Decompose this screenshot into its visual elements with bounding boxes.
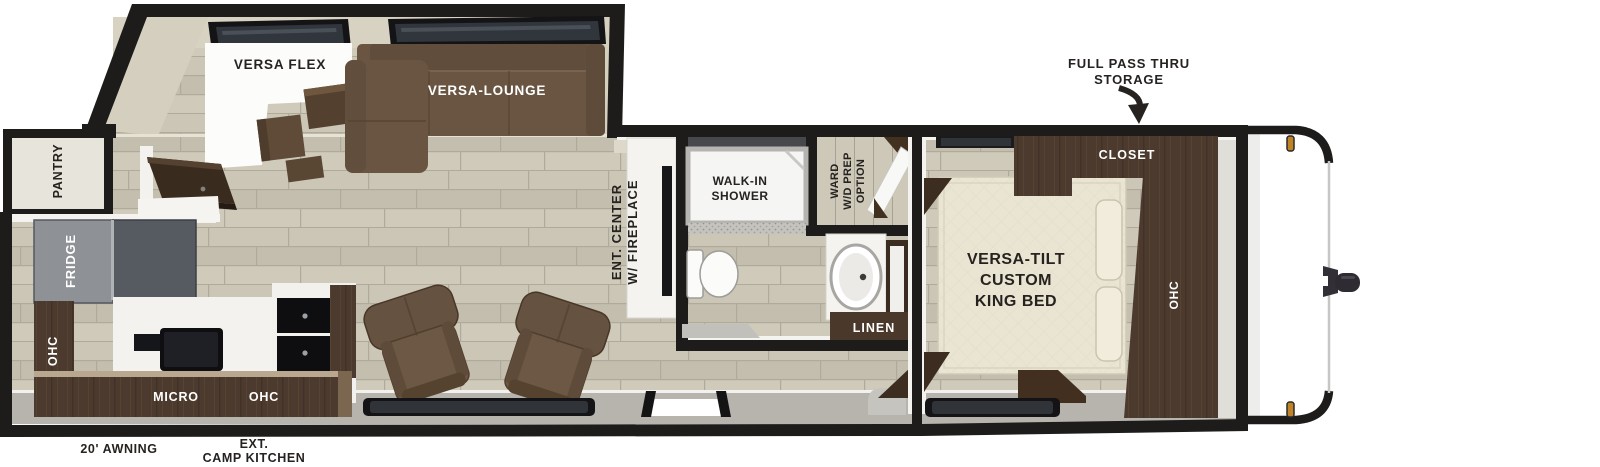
svg-text:WALK-IN: WALK-IN xyxy=(713,174,768,188)
svg-text:MICRO: MICRO xyxy=(153,390,199,404)
svg-text:EXT.: EXT. xyxy=(240,437,269,451)
svg-text:OHC: OHC xyxy=(46,336,60,366)
svg-text:SHOWER: SHOWER xyxy=(712,189,769,203)
svg-text:CLOSET: CLOSET xyxy=(1099,148,1156,162)
svg-text:LINEN: LINEN xyxy=(853,321,896,335)
svg-text:WARD: WARD xyxy=(829,163,841,198)
svg-text:VERSA-TILT: VERSA-TILT xyxy=(967,251,1065,268)
svg-text:W/ FIREPLACE: W/ FIREPLACE xyxy=(625,179,640,284)
svg-text:ENT. CENTER: ENT. CENTER xyxy=(609,184,624,280)
svg-text:FULL PASS THRU: FULL PASS THRU xyxy=(1068,56,1190,71)
svg-text:20' AWNING: 20' AWNING xyxy=(80,442,157,456)
svg-text:OPTION: OPTION xyxy=(855,159,867,204)
svg-text:OHC: OHC xyxy=(249,390,279,404)
svg-text:VERSA-LOUNGE: VERSA-LOUNGE xyxy=(428,83,546,98)
svg-text:STORAGE: STORAGE xyxy=(1094,72,1164,87)
svg-text:VERSA FLEX: VERSA FLEX xyxy=(234,57,326,72)
svg-text:KING BED: KING BED xyxy=(975,293,1057,310)
svg-text:W/D PREP: W/D PREP xyxy=(842,152,854,210)
svg-text:CUSTOM: CUSTOM xyxy=(980,272,1052,289)
svg-text:CAMP KITCHEN: CAMP KITCHEN xyxy=(203,451,306,465)
svg-text:PANTRY: PANTRY xyxy=(51,144,65,199)
svg-text:OHC: OHC xyxy=(1167,280,1181,309)
svg-text:FRIDGE: FRIDGE xyxy=(63,234,78,288)
